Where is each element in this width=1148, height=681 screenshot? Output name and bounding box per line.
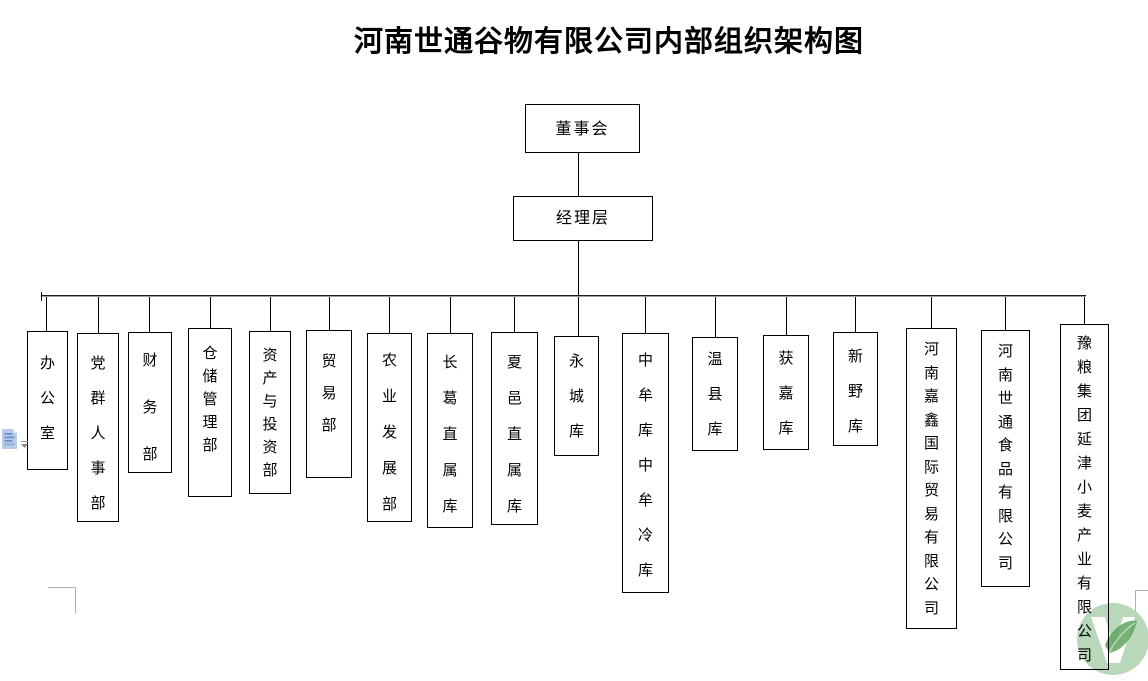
connector-stub xyxy=(210,297,211,328)
connector-stub xyxy=(1005,297,1006,330)
org-node-yongcheng-depot[interactable]: 永城库 xyxy=(554,336,599,456)
connector-stub xyxy=(715,297,716,337)
page-title: 河南世通谷物有限公司内部组织架构图 xyxy=(70,18,1148,60)
org-node-huojia-depot[interactable]: 获嘉库 xyxy=(763,335,809,450)
org-node-finance[interactable]: 财务部 xyxy=(128,332,172,473)
org-node-wenxian-depot[interactable]: 温县库 xyxy=(692,337,738,451)
org-node-xinye-depot[interactable]: 新野库 xyxy=(833,332,878,446)
connector-stub xyxy=(46,297,47,331)
text-boundary-mark-left xyxy=(48,587,77,613)
connector-stub xyxy=(786,297,787,335)
org-node-office[interactable]: 办公室 xyxy=(27,331,68,470)
watermark-logo xyxy=(1075,601,1148,677)
connector-stub xyxy=(1084,297,1085,324)
connector-rail-left-tick xyxy=(41,292,42,301)
connector-stub xyxy=(98,297,99,333)
connector-horizontal-rail xyxy=(41,295,1086,297)
org-node-changge-depot[interactable]: 长葛直属库 xyxy=(427,333,473,528)
connector-stub xyxy=(270,297,271,331)
org-node-asset-investment[interactable]: 资产与投资部 xyxy=(249,331,291,494)
connector-management-trunk xyxy=(578,241,579,336)
connector-stub xyxy=(645,297,646,333)
org-node-jiaxin-international-trade[interactable]: 河南嘉鑫国际贸易有限公司 xyxy=(906,328,957,629)
connector-stub xyxy=(389,297,390,333)
connector-stub xyxy=(855,297,856,332)
connector-stub xyxy=(329,297,330,330)
connector-stub xyxy=(450,297,451,333)
green-v-logo-icon xyxy=(1075,601,1148,677)
connector-stub xyxy=(149,297,150,334)
org-node-agriculture-development[interactable]: 农业发展部 xyxy=(367,333,412,522)
org-node-shitong-food[interactable]: 河南世通食品有限公司 xyxy=(981,330,1030,587)
org-node-management[interactable]: 经理层 xyxy=(513,196,653,241)
org-node-zhongmu-depot-cold-storage[interactable]: 中牟库中牟冷库 xyxy=(622,333,669,593)
org-node-trade[interactable]: 贸易部 xyxy=(306,330,352,478)
dropdown-arrow-icon[interactable] xyxy=(20,434,30,443)
connector-stub xyxy=(514,297,515,332)
org-node-board[interactable]: 董事会 xyxy=(525,104,640,153)
document-canvas: 河南世通谷物有限公司内部组织架构图 董事会 经理层 办公室 党群人事部 财务部 … xyxy=(0,0,1148,677)
org-node-warehouse-management[interactable]: 仓储管理部 xyxy=(188,328,232,497)
connector-stub xyxy=(931,297,932,328)
connector-board-management xyxy=(578,153,579,196)
org-node-party-personnel[interactable]: 党群人事部 xyxy=(77,333,119,522)
org-node-xiayi-depot[interactable]: 夏邑直属库 xyxy=(491,332,538,525)
